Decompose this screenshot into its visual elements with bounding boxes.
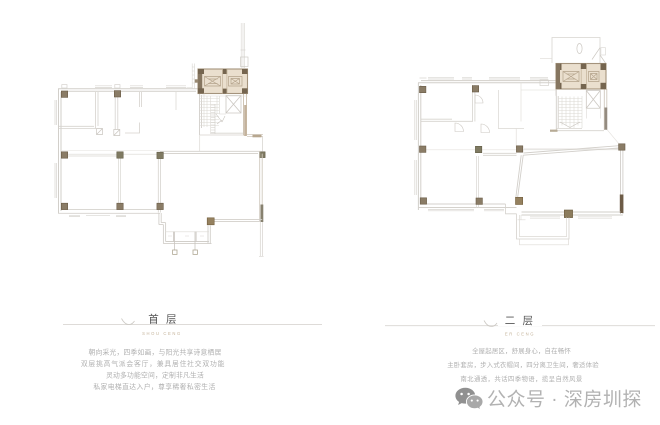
svg-text:灵动多功能空间，定制非凡生活: 灵动多功能空间，定制非凡生活: [106, 370, 204, 379]
svg-text:主卧套房，步入式衣帽间，四分离卫生间，奢适体验: 主卧套房，步入式衣帽间，四分离卫生间，奢适体验: [447, 360, 599, 369]
svg-text:私家电梯直达入户，尊享稀奢私密生活: 私家电梯直达入户，尊享稀奢私密生活: [93, 382, 215, 391]
svg-text:二 层: 二 层: [505, 315, 536, 327]
svg-text:双层挑高气派会客厅，兼具居住社交双功能: 双层挑高气派会客厅，兼具居住社交双功能: [81, 359, 225, 368]
svg-text:公众号 · 深房圳探: 公众号 · 深房圳探: [487, 389, 642, 411]
svg-text:ER CENG: ER CENG: [505, 331, 535, 336]
svg-text:SHOU CENG: SHOU CENG: [142, 331, 182, 336]
svg-text:南北通透，共话四季物语，揽呈自然风景: 南北通透，共话四季物语，揽呈自然风景: [460, 374, 582, 383]
svg-text:全屋起居区，舒展身心，自在畅怀: 全屋起居区，舒展身心，自在畅怀: [472, 346, 571, 355]
svg-text:首 层: 首 层: [148, 312, 179, 325]
svg-text:朝向采光，四季如画，与阳光共享诗意栖居: 朝向采光，四季如画，与阳光共享诗意栖居: [89, 347, 222, 356]
